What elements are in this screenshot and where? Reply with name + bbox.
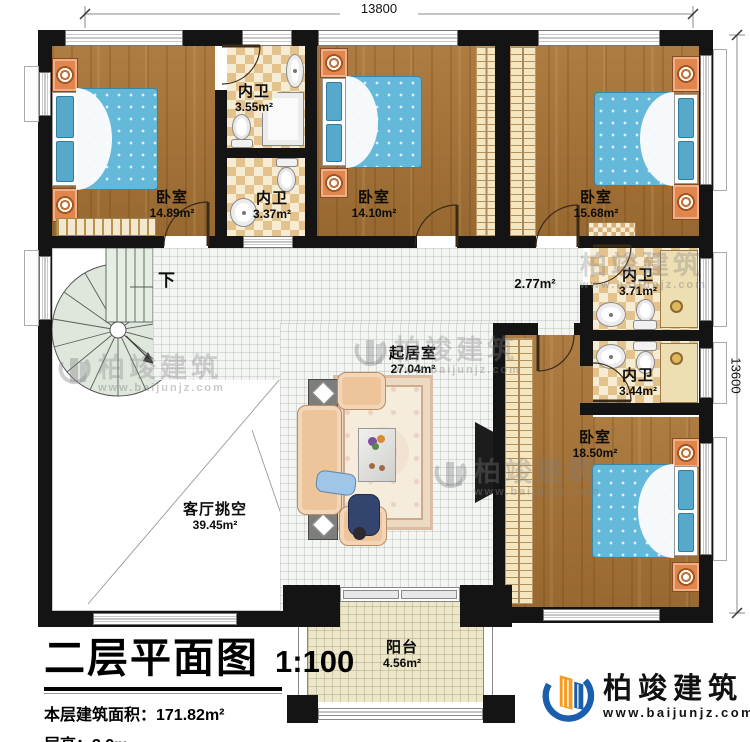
window-sill bbox=[713, 252, 727, 327]
room-label-bath-b: 内卫 3.37m² bbox=[222, 191, 322, 221]
head-cushion bbox=[678, 470, 694, 510]
lamp-icon bbox=[676, 192, 696, 212]
toilet-icon bbox=[277, 167, 296, 192]
flower-decor-icon bbox=[372, 443, 379, 450]
balcony-rail bbox=[483, 627, 493, 695]
lamp-icon bbox=[55, 195, 75, 215]
cabinet-knob bbox=[670, 352, 683, 365]
room-area: 3.44m² bbox=[588, 385, 688, 398]
wall-segment bbox=[208, 236, 243, 248]
bathroom-pass-window bbox=[243, 236, 293, 248]
cup-icon bbox=[379, 465, 385, 471]
window bbox=[65, 30, 183, 46]
nightstand bbox=[672, 438, 700, 468]
wall-segment bbox=[493, 323, 538, 335]
room-name: 卧室 bbox=[314, 190, 434, 207]
room-area: 4.56m² bbox=[342, 657, 462, 670]
pillar bbox=[283, 585, 340, 627]
room-label-bath-c: 内卫 3.71m² bbox=[588, 268, 688, 298]
cup-icon bbox=[369, 463, 375, 469]
room-label-void: 客厅挑空 39.45m² bbox=[155, 502, 275, 532]
window bbox=[700, 348, 712, 398]
end-table bbox=[308, 511, 338, 540]
window-sill bbox=[713, 437, 727, 561]
flower-decor-icon bbox=[377, 435, 385, 443]
sink-icon bbox=[286, 54, 304, 88]
room-label-bedroom-tr: 卧室 15.68m² bbox=[536, 190, 656, 220]
nightstand bbox=[672, 184, 700, 220]
coffee-table bbox=[358, 428, 396, 482]
room-name: 内卫 bbox=[222, 191, 322, 208]
plan-title: 二层平面图 bbox=[44, 624, 259, 684]
room-name: 阳台 bbox=[342, 640, 462, 657]
window-sill bbox=[24, 250, 39, 326]
lamp-icon bbox=[676, 443, 696, 463]
dimension-top: 13800 bbox=[340, 1, 418, 16]
window bbox=[538, 30, 660, 46]
room-label-living: 起居室 27.04m² bbox=[353, 346, 473, 376]
room-area: 15.68m² bbox=[536, 207, 656, 220]
sliding-door-panel bbox=[343, 590, 399, 599]
toilet-icon bbox=[636, 299, 655, 322]
plan-scale: 1:100 bbox=[275, 644, 354, 680]
floor-plan: 卧室 14.89m² 内卫 3.55m² 内卫 3.37m² 卧室 14.10m… bbox=[0, 0, 750, 742]
room-label-bath-a: 内卫 3.55m² bbox=[204, 84, 304, 114]
nightstand bbox=[52, 58, 78, 92]
lamp-icon bbox=[676, 567, 696, 587]
window bbox=[242, 30, 292, 46]
lamp-icon bbox=[676, 64, 696, 84]
tv-icon bbox=[475, 422, 493, 503]
room-name: 内卫 bbox=[204, 84, 304, 101]
room-area: 3.37m² bbox=[222, 208, 322, 221]
company-website: www.baijunjz.com bbox=[603, 705, 750, 720]
title-block: 二层平面图 1:100 本层建筑面积：171.82m² 层高：3.9m bbox=[44, 624, 354, 742]
room-label-bedroom-tm: 卧室 14.10m² bbox=[314, 190, 434, 220]
wall-segment bbox=[580, 330, 710, 341]
room-area: 14.10m² bbox=[314, 207, 434, 220]
cabinet-knob bbox=[670, 300, 683, 313]
company-logo: 柏竣建筑 www.baijunjz.com bbox=[538, 668, 750, 726]
lamp-icon bbox=[324, 53, 344, 73]
room-label-bedroom-br: 卧室 18.50m² bbox=[535, 430, 655, 460]
floor-area-text: 本层建筑面积：171.82m² bbox=[44, 701, 354, 725]
floor-height-text: 层高：3.9m bbox=[44, 731, 354, 742]
sink-icon bbox=[596, 344, 626, 369]
head-cushion bbox=[326, 82, 342, 121]
title-underline-thin bbox=[44, 693, 282, 694]
room-area: 27.04m² bbox=[353, 363, 473, 376]
wall-left bbox=[38, 30, 52, 627]
window-sill bbox=[713, 342, 727, 404]
bed-headboard bbox=[674, 94, 698, 184]
head-cushion bbox=[678, 513, 694, 553]
wall-segment bbox=[574, 323, 583, 335]
company-name: 柏竣建筑 bbox=[603, 674, 750, 704]
window-sill bbox=[24, 66, 39, 122]
wall-segment bbox=[510, 236, 536, 248]
hall-area-label: 2.77m² bbox=[495, 277, 575, 292]
lamp-icon bbox=[55, 65, 75, 85]
bed-headboard bbox=[52, 92, 78, 186]
room-name: 卧室 bbox=[112, 190, 232, 207]
bedroom-tr-wardrobe bbox=[510, 46, 536, 236]
sliding-door bbox=[340, 587, 460, 602]
toilet-tank bbox=[633, 341, 657, 351]
room-name: 内卫 bbox=[588, 268, 688, 285]
bedroom-tm-wardrobe bbox=[476, 46, 497, 236]
room-area: 3.71m² bbox=[588, 285, 688, 298]
dimension-right: 13600 bbox=[729, 342, 744, 410]
room-name: 起居室 bbox=[353, 346, 473, 363]
nightstand bbox=[320, 48, 348, 78]
head-cushion bbox=[56, 141, 74, 183]
window bbox=[39, 256, 51, 320]
watermark-logo-icon bbox=[56, 352, 92, 396]
end-table bbox=[308, 379, 338, 408]
head-cushion bbox=[678, 141, 694, 181]
room-name: 卧室 bbox=[535, 430, 655, 447]
armchair bbox=[337, 372, 386, 410]
head-cushion bbox=[678, 98, 694, 138]
toilet-tank bbox=[231, 139, 253, 148]
balcony-pillar bbox=[483, 695, 515, 723]
watermark-website: www.baijunjz.com bbox=[98, 382, 225, 394]
room-area: 14.89m² bbox=[112, 207, 232, 220]
wall-segment bbox=[578, 236, 699, 248]
toilet-tank bbox=[633, 320, 657, 330]
wall-segment bbox=[227, 148, 305, 158]
room-name: 卧室 bbox=[536, 190, 656, 207]
head-cushion bbox=[326, 124, 342, 163]
bed-headboard bbox=[674, 466, 698, 556]
room-label-balcony: 阳台 4.56m² bbox=[342, 640, 462, 670]
stairs-down-label: 下 bbox=[158, 266, 175, 291]
bench bbox=[56, 218, 156, 236]
room-area: 3.55m² bbox=[204, 101, 304, 114]
sliding-door-panel bbox=[401, 590, 457, 599]
toilet-icon bbox=[232, 114, 251, 140]
wall-segment bbox=[495, 46, 510, 248]
window bbox=[318, 30, 458, 46]
wall-segment bbox=[580, 403, 710, 415]
bed-headboard bbox=[322, 78, 346, 166]
company-logo-icon bbox=[538, 668, 596, 726]
head-cushion bbox=[56, 96, 74, 138]
room-name: 客厅挑空 bbox=[155, 502, 275, 519]
person-head bbox=[353, 527, 366, 540]
room-area: 18.50m² bbox=[535, 447, 655, 460]
sofa bbox=[297, 405, 342, 515]
wall-segment bbox=[580, 238, 593, 248]
wall-segment bbox=[293, 236, 417, 248]
toilet-tank bbox=[276, 158, 298, 167]
sink-icon bbox=[596, 302, 626, 327]
room-area: 39.45m² bbox=[155, 519, 275, 532]
bedroom-br-wardrobe bbox=[505, 338, 533, 604]
wall-segment bbox=[493, 335, 505, 611]
window bbox=[700, 258, 712, 321]
title-underline bbox=[44, 687, 282, 691]
nightstand bbox=[52, 188, 78, 222]
wall-segment bbox=[52, 236, 164, 248]
window bbox=[39, 72, 51, 116]
window bbox=[543, 609, 660, 621]
window bbox=[700, 443, 712, 555]
wall-segment bbox=[580, 341, 593, 366]
room-label-bedroom-tl: 卧室 14.89m² bbox=[112, 190, 232, 220]
window bbox=[700, 55, 712, 185]
room-name: 内卫 bbox=[588, 368, 688, 385]
nightstand bbox=[672, 56, 700, 92]
window-sill bbox=[713, 49, 727, 191]
nightstand bbox=[672, 562, 700, 592]
room-area: 2.77m² bbox=[495, 277, 575, 292]
room-label-bath-d: 内卫 3.44m² bbox=[588, 368, 688, 398]
